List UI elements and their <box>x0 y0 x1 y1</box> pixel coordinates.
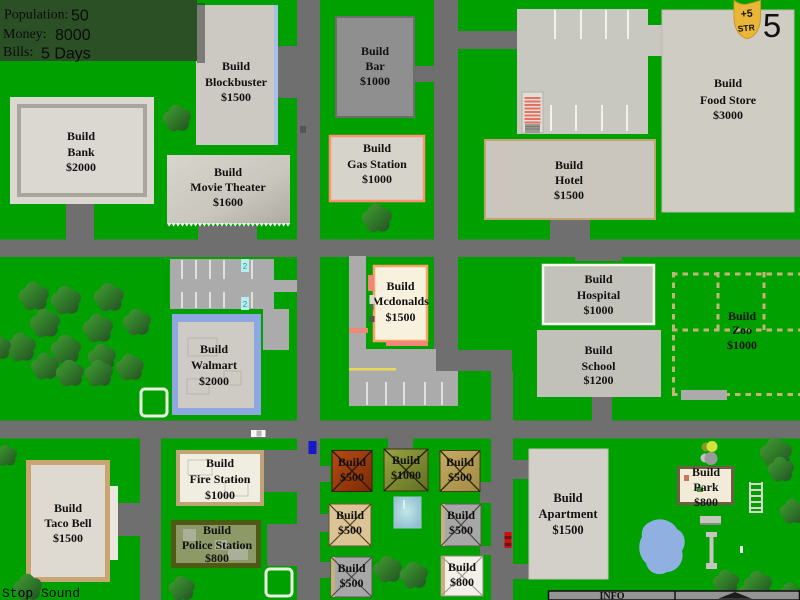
svg-text:8000: 8000 <box>55 27 91 44</box>
svg-text:STR: STR <box>737 22 755 33</box>
svg-text:Money:: Money: <box>3 27 47 42</box>
svg-text:Build$1000: Build$1000 <box>391 453 421 482</box>
svg-text:5: 5 <box>763 7 781 44</box>
svg-text:5 Days: 5 Days <box>41 46 91 63</box>
svg-text:Build$500: Build$500 <box>447 508 475 537</box>
svg-text:BuildSchool$1200: BuildSchool$1200 <box>581 343 616 387</box>
svg-text:INFO: INFO <box>600 591 625 600</box>
svg-text:Build$500: Build$500 <box>446 455 474 484</box>
svg-text:BuildBank$2000: BuildBank$2000 <box>66 129 96 174</box>
svg-text:Build$500: Build$500 <box>338 455 366 484</box>
svg-text:50: 50 <box>71 8 89 25</box>
svg-text:BuildPark$800: BuildPark$800 <box>692 465 720 509</box>
svg-text:Build$500: Build$500 <box>337 561 365 590</box>
svg-text:Build$800: Build$800 <box>448 560 476 589</box>
svg-text:Build$500: Build$500 <box>336 508 364 537</box>
svg-text:Bills:: Bills: <box>3 45 33 60</box>
svg-text:Population:: Population: <box>4 8 69 23</box>
svg-text:Stop Sound: Stop Sound <box>2 586 80 600</box>
svg-text:2: 2 <box>243 262 248 271</box>
svg-text:2: 2 <box>243 300 248 309</box>
svg-text:BuildHotel$1500: BuildHotel$1500 <box>554 158 584 202</box>
svg-text:+5: +5 <box>740 7 753 20</box>
